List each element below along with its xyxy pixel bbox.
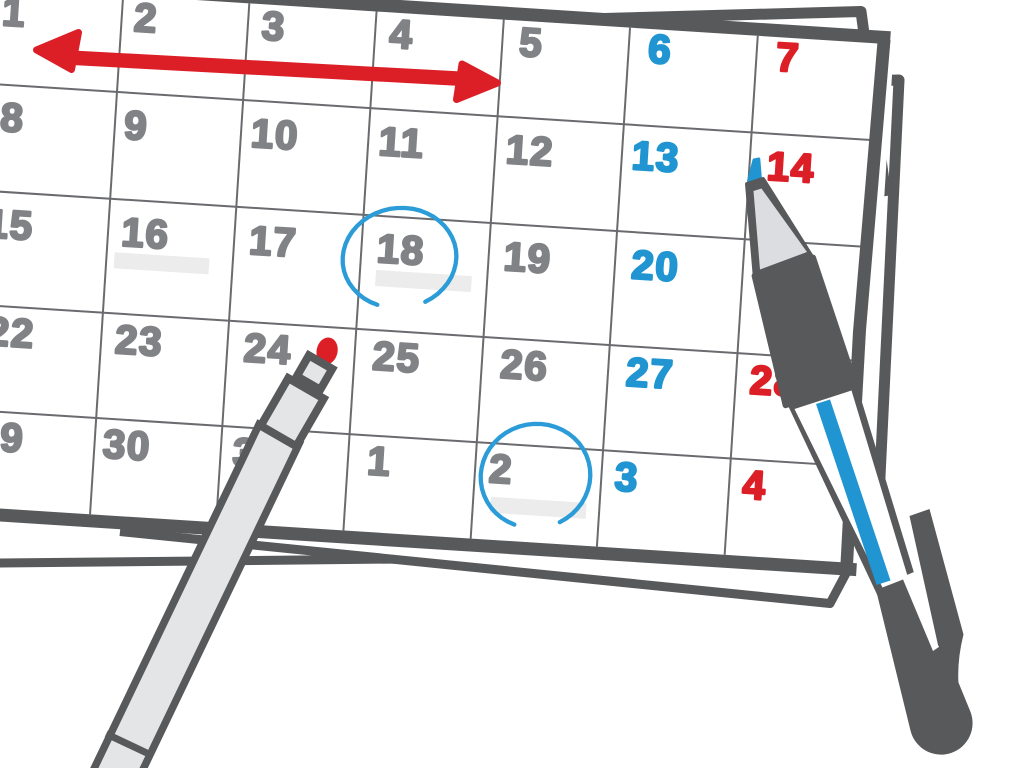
svg-text:17: 17: [248, 217, 299, 266]
svg-text:16: 16: [120, 209, 171, 258]
svg-text:27: 27: [625, 349, 676, 398]
svg-text:23: 23: [114, 316, 165, 365]
svg-text:1: 1: [1, 0, 28, 36]
svg-text:24: 24: [242, 324, 293, 373]
svg-text:1: 1: [366, 437, 393, 484]
svg-text:14: 14: [766, 143, 817, 192]
svg-text:2: 2: [488, 445, 515, 492]
svg-text:2: 2: [133, 0, 160, 42]
svg-text:6: 6: [647, 25, 674, 72]
svg-text:18: 18: [376, 225, 427, 274]
svg-text:12: 12: [505, 126, 556, 175]
svg-text:15: 15: [0, 200, 35, 249]
svg-text:4: 4: [388, 10, 415, 57]
svg-text:10: 10: [250, 110, 301, 159]
svg-text:20: 20: [630, 241, 681, 290]
svg-text:3: 3: [613, 453, 640, 500]
svg-text:30: 30: [102, 421, 153, 470]
svg-text:9: 9: [123, 102, 150, 149]
svg-text:26: 26: [499, 341, 550, 390]
svg-text:13: 13: [630, 132, 681, 181]
svg-text:11: 11: [377, 118, 426, 167]
svg-text:8: 8: [0, 94, 26, 141]
svg-text:22: 22: [0, 308, 36, 357]
svg-text:3: 3: [260, 2, 287, 49]
svg-text:4: 4: [741, 461, 768, 508]
svg-text:19: 19: [502, 233, 553, 282]
svg-text:7: 7: [775, 34, 802, 81]
svg-text:5: 5: [518, 19, 545, 66]
svg-text:25: 25: [371, 332, 422, 381]
svg-text:29: 29: [0, 412, 26, 461]
